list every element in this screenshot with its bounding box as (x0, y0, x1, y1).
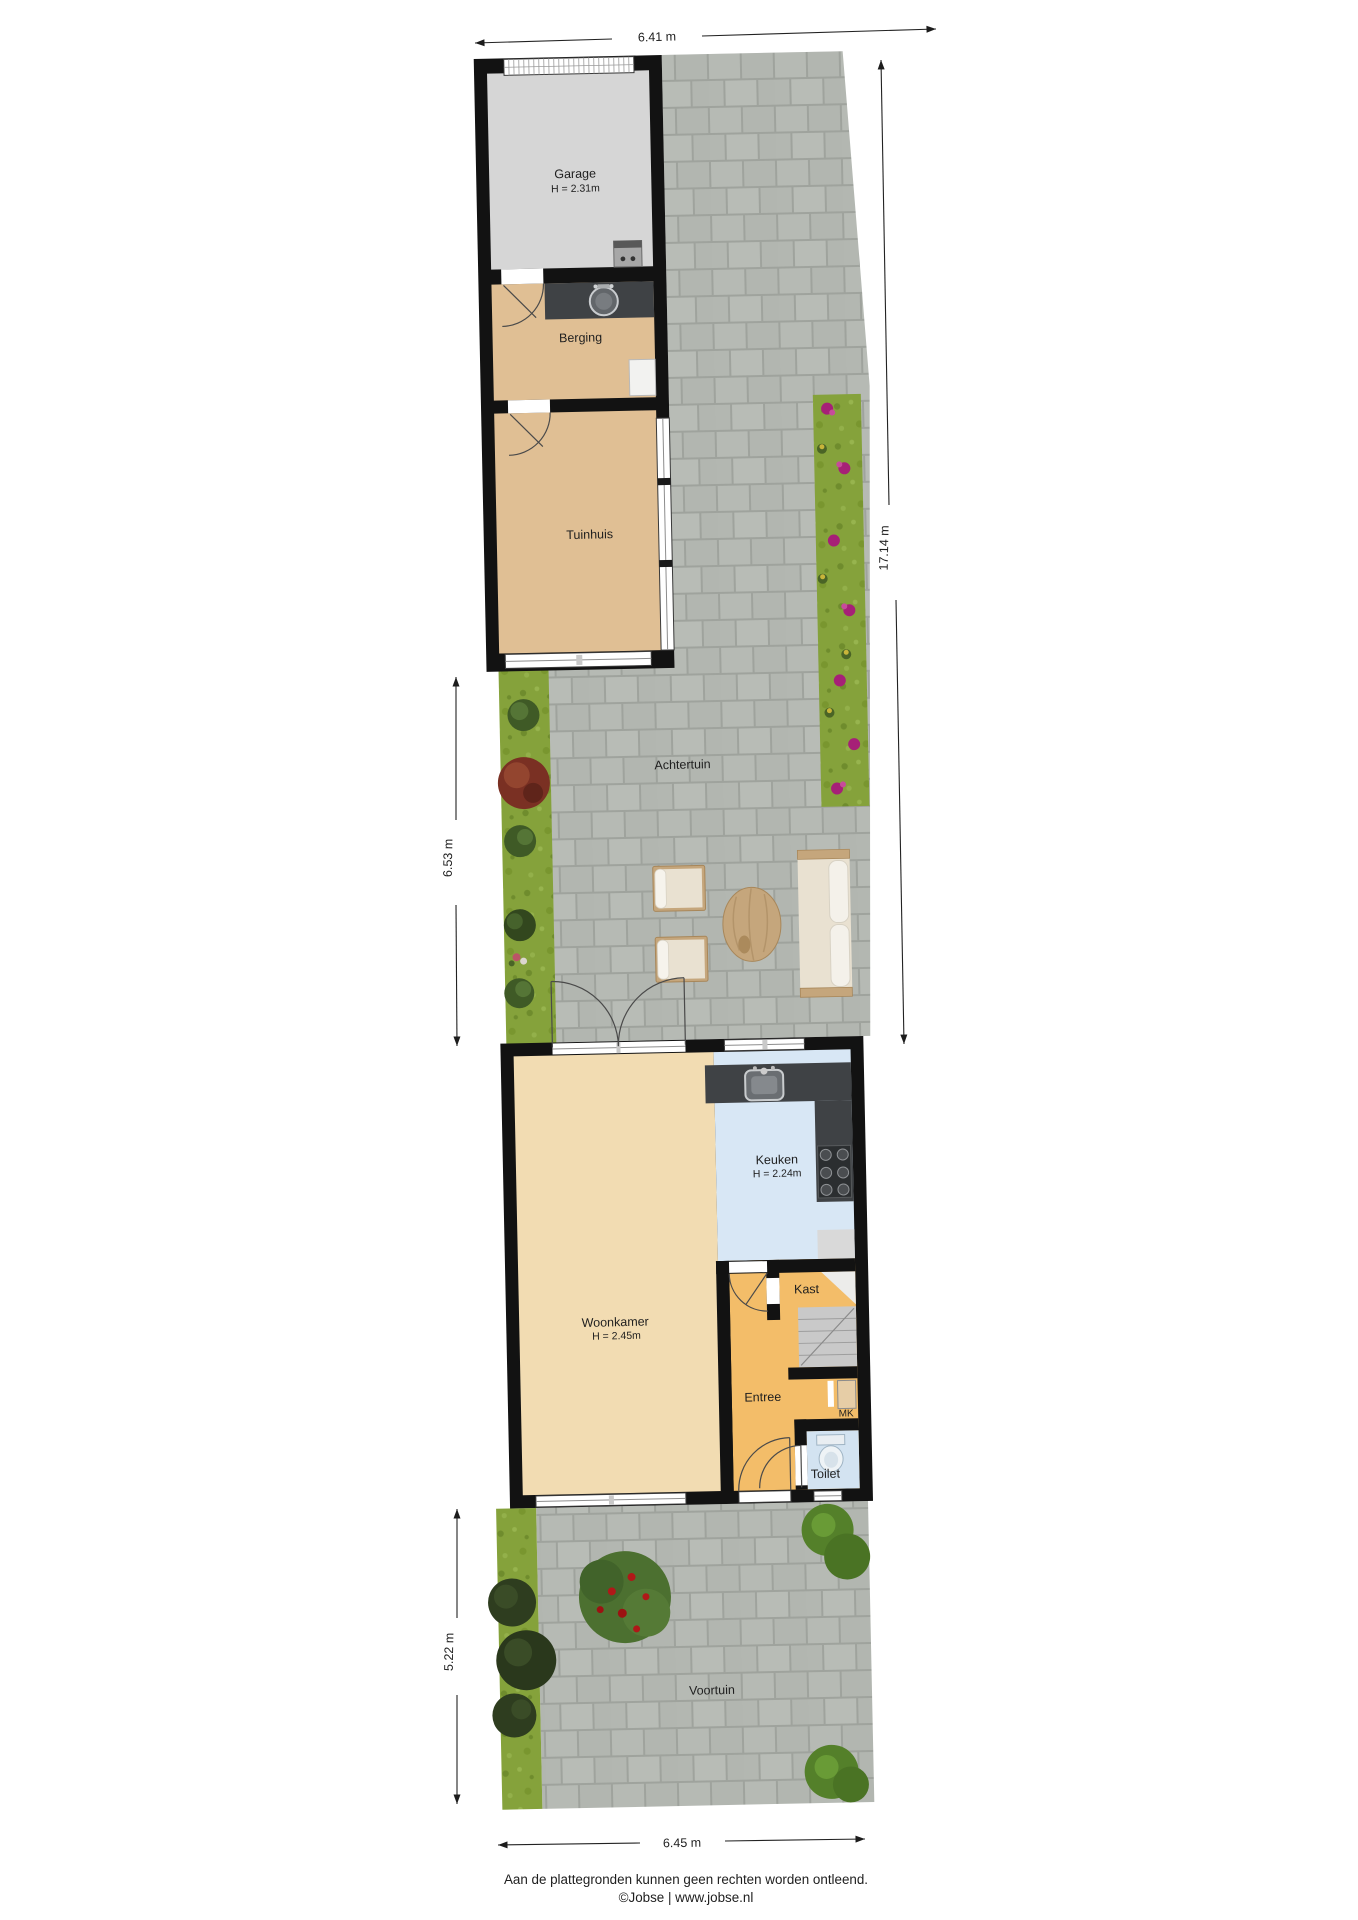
footer-disclaimer: Aan de plattegronden kunnen geen rechten… (504, 1872, 868, 1887)
achtertuin-label: Achtertuin (654, 757, 711, 772)
keuken-label: Keuken (755, 1152, 798, 1167)
dimension-garden-left: 6.53 m (441, 677, 457, 1046)
dimension-top: 6.41 m (475, 29, 936, 45)
dimension-right: 17.14 m (877, 60, 904, 1044)
dimension-bottom: 6.45 m (498, 1836, 865, 1851)
woonkamer-floor (514, 1052, 723, 1495)
mk-door-gap (827, 1381, 834, 1407)
garage-label: Garage (554, 166, 596, 181)
footer-credit: ©Jobse | www.jobse.nl (619, 1890, 754, 1905)
stairs (798, 1306, 857, 1367)
berging-washer (629, 359, 656, 396)
keuken-window (724, 1038, 804, 1051)
mk-label: MK (839, 1408, 855, 1419)
garage-appliance (614, 240, 643, 267)
house (499, 974, 873, 1508)
dimension-top-label: 6.41 m (638, 29, 677, 44)
dimension-bottom-label: 6.45 m (663, 1836, 701, 1851)
entree-label: Entree (744, 1390, 781, 1405)
floorplan-page: Garage H = 2.31m Berging Tuinhuis Achter… (0, 0, 1358, 1920)
plan-group: Garage H = 2.31m Berging Tuinhuis Achter… (456, 51, 900, 1810)
stove (818, 1145, 852, 1198)
keuken-appliance (817, 1229, 855, 1259)
tuinhuis-bottom-window (505, 651, 651, 668)
woonkamer-height-label: H = 2.45m (592, 1330, 641, 1343)
mk-cabinet (837, 1380, 856, 1408)
floorplan-canvas: Garage H = 2.31m Berging Tuinhuis Achter… (0, 0, 1358, 1920)
keuken-sink (745, 1066, 784, 1101)
front-door-gap (739, 1491, 791, 1503)
keuken-door-gap (729, 1261, 767, 1273)
tuinhuis-label: Tuinhuis (566, 527, 613, 542)
berging-counter (544, 281, 654, 319)
kast-door-gap (766, 1278, 780, 1304)
woonkamer-label: Woonkamer (581, 1315, 648, 1330)
outbuildings (474, 55, 675, 672)
footer: Aan de plattegronden kunnen geen rechten… (504, 1872, 868, 1905)
dimension-front-left: 5.22 m (442, 1509, 457, 1804)
keuken-height-label: H = 2.24m (753, 1167, 802, 1180)
berging-label: Berging (559, 330, 602, 345)
dimension-right-label: 17.14 m (877, 525, 892, 570)
dimension-front-left-label: 5.22 m (442, 1633, 457, 1671)
voortuin-label: Voortuin (689, 1683, 735, 1698)
flower-bed (813, 394, 870, 807)
toilet-window (814, 1491, 842, 1502)
garden-chair (655, 936, 708, 982)
toilet-label: Toilet (811, 1467, 841, 1482)
garden-sofa (797, 849, 852, 997)
wall-under-stairs (788, 1366, 857, 1379)
garage-door (504, 57, 634, 76)
kast-label: Kast (794, 1282, 820, 1297)
garage-height-label: H = 2.31m (551, 182, 600, 195)
dimension-garden-left-label: 6.53 m (441, 839, 456, 877)
garden-chair (653, 865, 706, 911)
